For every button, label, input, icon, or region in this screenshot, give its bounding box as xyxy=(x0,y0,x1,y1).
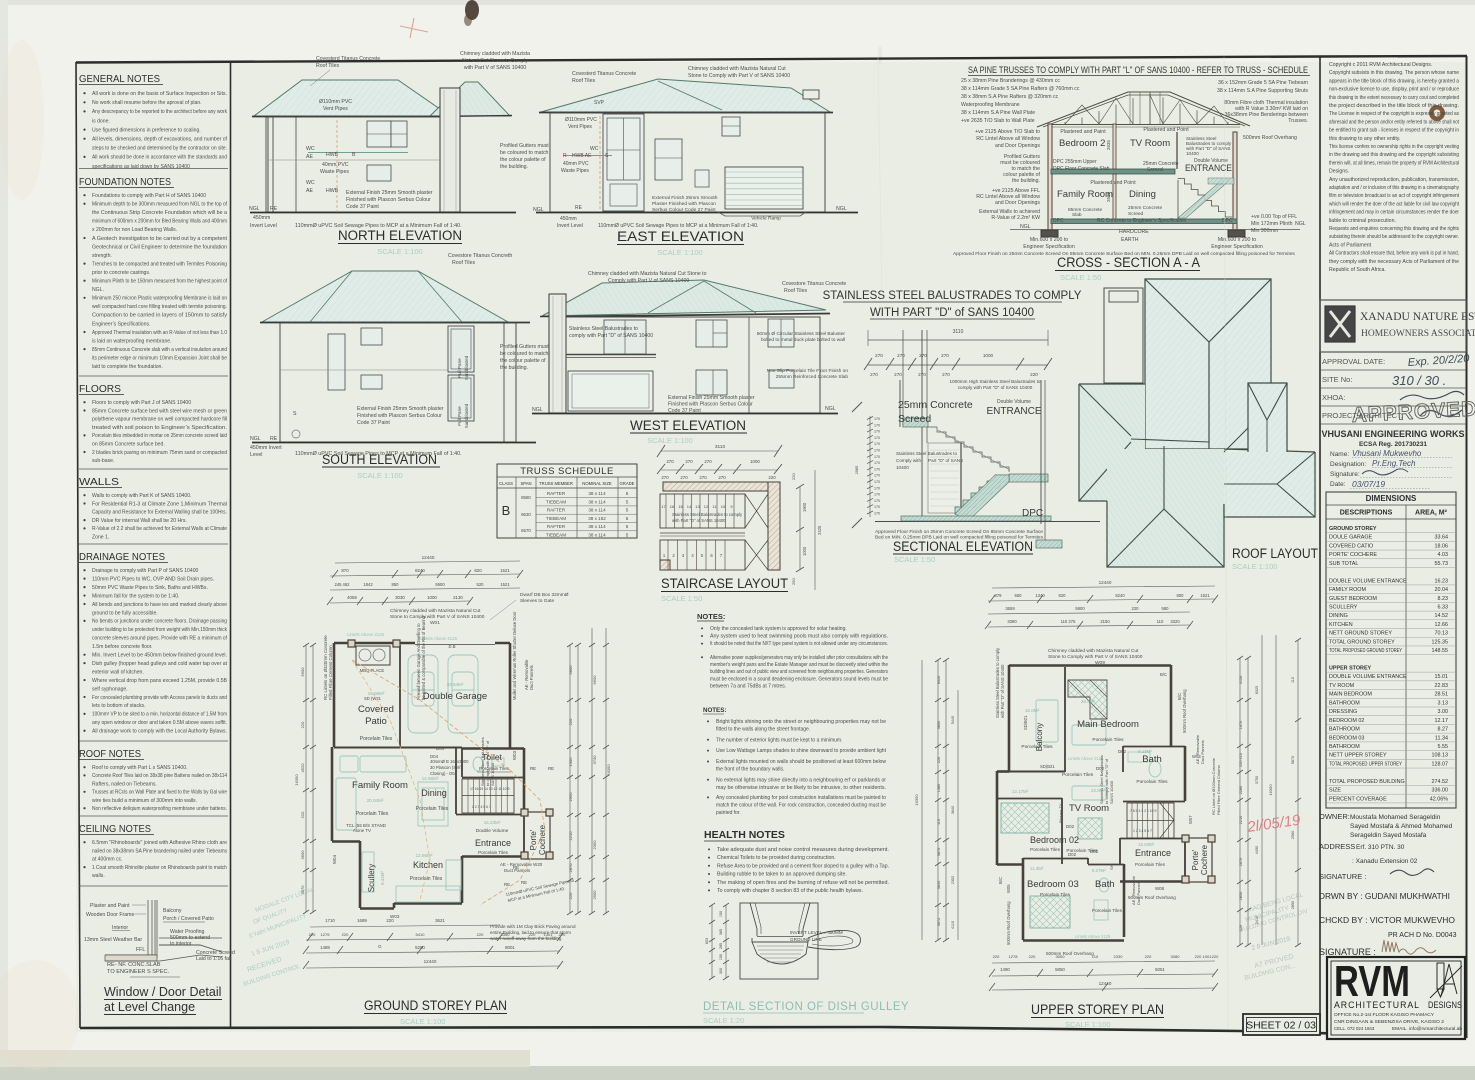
svg-text:110mm PVC Pipes to WC, OVP AND: 110mm PVC Pipes to WC, OVP AND Soil Drai… xyxy=(92,576,214,582)
svg-text:ARCHITECTURAL: ARCHITECTURAL xyxy=(1334,1000,1420,1010)
svg-text:Laid to 1:16 fall: Laid to 1:16 fall xyxy=(196,956,231,962)
svg-text:SOUTH ELEVATION: SOUTH ELEVATION xyxy=(322,452,437,467)
svg-text:RE: RE xyxy=(521,880,527,885)
svg-text:Interior: Interior xyxy=(112,925,128,931)
svg-text:KITCHEN: KITCHEN xyxy=(1329,622,1353,628)
svg-text:Family Room: Family Room xyxy=(352,780,408,791)
svg-text:its perimeter edge or minimum: its perimeter edge or minimum 10mm Expan… xyxy=(92,355,227,361)
svg-text:110 375: 110 375 xyxy=(1061,619,1076,624)
svg-text:Porcelain Tiles: Porcelain Tiles xyxy=(1040,892,1071,897)
svg-text:SITE No:: SITE No: xyxy=(1322,375,1352,384)
svg-text:SD/B21: SD/B21 xyxy=(1023,715,1028,730)
svg-text:GROUND STOREY PLAN: GROUND STOREY PLAN xyxy=(364,998,507,1013)
svg-text:170: 170 xyxy=(874,467,880,471)
svg-text:aforesaid and the person and/o: aforesaid and the person and/or entity r… xyxy=(1329,119,1459,125)
svg-text:1300: 1300 xyxy=(568,757,573,767)
svg-text:110: 110 xyxy=(937,819,941,825)
svg-text:Chimney cladded with Mazista N: Chimney cladded with Mazista Natural Cut xyxy=(688,66,786,72)
svg-text:SCALE 1:100: SCALE 1:100 xyxy=(647,436,692,445)
svg-text:NGL: NGL xyxy=(532,407,543,413)
svg-text:No bends or junctions under co: No bends or junctions under concrete flo… xyxy=(92,619,227,625)
svg-text:70.13: 70.13 xyxy=(1435,631,1449,637)
svg-text:MAIN BEDROOM: MAIN BEDROOM xyxy=(1329,692,1372,698)
svg-text:Comply with: Comply with xyxy=(896,458,921,463)
svg-text:7 6 5 4 3 2 1 10 9: 7 6 5 4 3 2 1 10 9 xyxy=(1130,809,1157,813)
svg-text:4.03: 4.03 xyxy=(1438,552,1449,558)
svg-text:25mm Concrete: 25mm Concrete xyxy=(1128,205,1162,211)
svg-text:SD (W21: SD (W21 xyxy=(364,696,382,701)
svg-text:Compaction to be carried in la: Compaction to be carried in layers of 15… xyxy=(92,313,227,319)
svg-text:8240: 8240 xyxy=(1115,593,1125,598)
svg-text:36 x 152mm Grade 5 SA Pine Tie: 36 x 152mm Grade 5 SA Pine Tiebeam xyxy=(1218,80,1308,86)
svg-text:WALLS: WALLS xyxy=(79,476,119,488)
svg-text:Bright lights shining onto the: Bright lights shining onto the street or… xyxy=(716,719,886,725)
svg-text:3110: 3110 xyxy=(715,444,726,450)
svg-text:wire ties build a minimum of 3: wire ties build a minimum of 300mm into … xyxy=(92,798,197,804)
svg-text:Provide with 1M Clay Brick Pav: Provide with 1M Clay Brick Paving around xyxy=(490,924,576,929)
svg-text:TO ENGINEER S SPEC.: TO ENGINEER S SPEC. xyxy=(107,969,170,975)
svg-text:SVP: SVP xyxy=(594,100,605,106)
svg-text:Porcelain tiles imbedded in m: Porcelain tiles imbedded in mortar on 25… xyxy=(92,433,227,439)
svg-text:30 Plascon (Self: 30 Plascon (Self xyxy=(430,765,461,770)
svg-text:DOUBLE VOLUME ENTRANCE: DOUBLE VOLUME ENTRANCE xyxy=(1329,578,1407,584)
svg-text:is done.: is done. xyxy=(92,118,110,124)
svg-text:Name:: Name: xyxy=(1330,451,1349,458)
svg-text:3659: 3659 xyxy=(1005,606,1015,611)
svg-text:CNR DINGAAN & SEBENZISA DRIVE,: CNR DINGAAN & SEBENZISA DRIVE, KAGISO 2 xyxy=(1334,1019,1445,1024)
svg-text:250: 250 xyxy=(791,578,796,585)
svg-text:Min.600 x 200 to: Min.600 x 200 to xyxy=(1030,237,1068,243)
svg-text:W03: W03 xyxy=(512,750,517,760)
svg-text:ADDRESS: ADDRESS xyxy=(1319,842,1355,851)
svg-text:ROOF NOTES: ROOF NOTES xyxy=(79,748,141,760)
svg-text:8001: 8001 xyxy=(505,945,515,950)
svg-text:Code 37 Paint: Code 37 Paint xyxy=(346,204,379,210)
svg-text:38 x 114: 38 x 114 xyxy=(588,533,606,538)
svg-text:at Level Change: at Level Change xyxy=(104,1000,195,1014)
svg-text:2635: 2635 xyxy=(1106,192,1111,202)
svg-text:The License in respect of the: The License in respect of the copyright … xyxy=(1329,111,1459,117)
svg-text:170: 170 xyxy=(874,474,880,478)
svg-text:SCALE 1:100: SCALE 1:100 xyxy=(657,248,702,257)
svg-text:220: 220 xyxy=(568,892,573,899)
svg-text:1521: 1521 xyxy=(500,568,510,573)
svg-text:comply with Part "D" of SANS 1: comply with Part "D" of SANS 10400 xyxy=(569,333,653,339)
svg-text:15.03M²: 15.03M² xyxy=(1138,842,1155,847)
svg-text:: Xanadu Extension 02: : Xanadu Extension 02 xyxy=(1352,858,1418,865)
svg-text:Porcelain Tiles: Porcelain Tiles xyxy=(1021,744,1053,750)
svg-text:PERCENT COVERAGE: PERCENT COVERAGE xyxy=(1329,796,1387,802)
svg-text:270: 270 xyxy=(685,459,693,464)
svg-text:PR ACH D No. D0043: PR ACH D No. D0043 xyxy=(1388,932,1457,939)
svg-text:OFFICE No.2-1st FLOOR KAGISO P: OFFICE No.2-1st FLOOR KAGISO PHAMACY xyxy=(1334,1012,1434,1017)
svg-text:520: 520 xyxy=(477,582,485,587)
svg-text:Roof Tiles: Roof Tiles xyxy=(316,63,339,69)
svg-text:12440: 12440 xyxy=(1099,981,1112,986)
svg-text:Capacity and Resistance for Ex: Capacity and Resistance for External Wal… xyxy=(92,510,227,516)
svg-text:40mm PVC: 40mm PVC xyxy=(563,161,589,167)
svg-text:500mm Roof Overhang: 500mm Roof Overhang xyxy=(1243,135,1297,141)
svg-text:3750: 3750 xyxy=(1255,776,1259,784)
svg-text:Non Slip Porcelain Tile Floor: Non Slip Porcelain Tile Floor Finish on xyxy=(767,368,849,374)
svg-text:Full Pane: Full Pane xyxy=(457,406,462,426)
svg-text:Republic of South Africa.: Republic of South Africa. xyxy=(1329,267,1386,273)
svg-text:462: 462 xyxy=(343,582,351,587)
svg-text:16350: 16350 xyxy=(914,794,919,806)
svg-text:DIMENSIONS: DIMENSIONS xyxy=(1366,494,1417,503)
svg-text:Dwarf DB Box 32mmØ: Dwarf DB Box 32mmØ xyxy=(520,592,569,598)
svg-text:3320: 3320 xyxy=(1170,619,1180,624)
svg-text:Double Volume: Double Volume xyxy=(476,828,509,834)
svg-text:Covestore Titanus Concreth: Covestore Titanus Concreth xyxy=(448,253,512,259)
svg-text:16350: 16350 xyxy=(294,774,299,786)
svg-text:Porcelain Tiles: Porcelain Tiles xyxy=(360,736,393,742)
svg-text:Wooden Door Frame: Wooden Door Frame xyxy=(86,912,134,918)
svg-text:Plastered and Point: Plastered and Point xyxy=(1143,127,1189,133)
svg-text:5410: 5410 xyxy=(416,932,426,937)
svg-text:therein will, at all times, re: therein will, at all times, remain the p… xyxy=(1329,160,1459,166)
svg-text:12: 12 xyxy=(704,504,709,509)
svg-text:W04: W04 xyxy=(332,854,337,864)
svg-text:walls.: walls. xyxy=(92,873,105,879)
svg-text:Finished with Plascon Serbus C: Finished with Plascon Serbus Colour xyxy=(668,402,753,408)
svg-text:1380: 1380 xyxy=(937,784,941,792)
svg-text:be coloured to match: be coloured to match xyxy=(500,351,549,357)
svg-text:Filled Fibre Cement Column: Filled Fibre Cement Column xyxy=(1216,765,1221,815)
svg-text:COVERED CATIO: COVERED CATIO xyxy=(1329,543,1373,549)
svg-text:Concrete Roof Tiles laid on 38: Concrete Roof Tiles laid on 38x38 pine B… xyxy=(92,773,227,779)
svg-text:9630: 9630 xyxy=(521,512,531,517)
svg-text:2420: 2420 xyxy=(817,525,822,535)
svg-text:Invert Level: Invert Level xyxy=(250,223,277,229)
svg-text:Walls to comply with Part K of: Walls to comply with Part K of SANS 1040… xyxy=(92,493,191,499)
svg-text:ENTRANCE: ENTRANCE xyxy=(986,406,1041,417)
svg-text:and Door Openings: and Door Openings xyxy=(995,200,1040,206)
svg-text:Approved Thermal insulation wi: Approved Thermal insulation with an R-Va… xyxy=(92,330,227,336)
svg-text:270: 270 xyxy=(699,475,707,480)
svg-text:NGL: NGL xyxy=(825,406,836,412)
svg-text:5870: 5870 xyxy=(937,848,941,856)
svg-text:220: 220 xyxy=(342,932,349,937)
svg-text:220: 220 xyxy=(1145,954,1152,959)
svg-text:270: 270 xyxy=(718,475,726,480)
svg-text:Waterproofing Membrane: Waterproofing Membrane xyxy=(961,102,1020,108)
svg-text:1489: 1489 xyxy=(320,945,330,950)
svg-text:appears in the title block of: appears in the title block of this drawi… xyxy=(1329,78,1459,84)
svg-text:Covesterd Titanus Concrete: Covesterd Titanus Concrete xyxy=(572,71,636,77)
svg-text:Plasma TV: Plasma TV xyxy=(1058,803,1063,823)
svg-text:3621: 3621 xyxy=(435,918,445,923)
svg-text:Requests and enquiries concern: Requests and enquiries concerning this d… xyxy=(1329,226,1459,232)
svg-text:33.64M²: 33.64M² xyxy=(447,682,464,687)
svg-text:16350: 16350 xyxy=(606,764,611,776)
svg-text:TV Room: TV Room xyxy=(1130,138,1170,149)
svg-text:4126: 4126 xyxy=(1239,676,1243,684)
svg-text:D04: D04 xyxy=(436,746,445,751)
svg-text:Mullet and Wireman Roller Shut: Mullet and Wireman Roller Shutter Deluxe… xyxy=(512,611,517,700)
svg-text:Chimney cladded with Mazista N: Chimney cladded with Mazista Natural Cut xyxy=(1048,648,1139,654)
svg-text:270: 270 xyxy=(661,475,669,480)
svg-text:minimum of 600mm x 200mm for B: minimum of 600mm x 200mm for Bled Bearin… xyxy=(92,219,227,225)
svg-text:38 x 114mm S.A Pine Supporting: 38 x 114mm S.A Pine Supporting Struts xyxy=(1217,88,1308,94)
svg-text:+ve 0.00 Top of FFL: +ve 0.00 Top of FFL xyxy=(1251,214,1297,220)
svg-text:1275: 1275 xyxy=(321,932,331,937)
svg-text:External lights mounted on wal: External lights mounted on walls should … xyxy=(716,759,886,765)
svg-text:220: 220 xyxy=(559,932,566,937)
svg-text:220: 220 xyxy=(309,932,316,937)
svg-text:RE: RE xyxy=(270,206,278,212)
svg-text:Profiled Gutters must: Profiled Gutters must xyxy=(500,143,549,149)
svg-text:Bedroom 2: Bedroom 2 xyxy=(1059,138,1105,149)
svg-text:1000mm High Stainless Steel Ba: 1000mm High Stainless Steel Balustrades … xyxy=(950,379,1041,384)
svg-text:the Continuous Strip Concrete: the Continuous Strip Concrete Foundation… xyxy=(92,210,227,216)
svg-text:310 / 30 .: 310 / 30 . xyxy=(1392,373,1446,388)
svg-text:Take adequate dust and noise c: Take adequate dust and noise control mea… xyxy=(717,847,889,853)
svg-text:VHUSANI ENGINEERING WORKS: VHUSANI ENGINEERING WORKS xyxy=(1321,429,1464,439)
svg-text:820: 820 xyxy=(1059,593,1067,598)
svg-text:879: 879 xyxy=(995,593,1003,598)
svg-text:108.13: 108.13 xyxy=(1432,753,1449,759)
svg-text:the colour palette of: the colour palette of xyxy=(500,157,546,163)
svg-text:38 x 114: 38 x 114 xyxy=(588,491,606,496)
svg-text:RE: RE xyxy=(530,766,536,771)
svg-text:Porcelain Tiles: Porcelain Tiles xyxy=(1136,779,1168,785)
svg-text:Minimum fall for the system to: Minimum fall for the system to be 1:40. xyxy=(92,593,179,599)
svg-text:8.27: 8.27 xyxy=(1438,727,1449,733)
svg-text:4520: 4520 xyxy=(300,763,305,773)
svg-text:220: 220 xyxy=(477,932,484,937)
svg-text:8.27M²: 8.27M² xyxy=(1092,868,1106,873)
svg-text:Ø110mm PVC: Ø110mm PVC xyxy=(319,99,352,105)
svg-text:DPC: DPC xyxy=(1022,508,1043,519)
svg-text:Screed: Screed xyxy=(898,413,931,425)
svg-text:Roof Tiles: Roof Tiles xyxy=(452,260,475,266)
svg-text:Pr.Eng.Tech: Pr.Eng.Tech xyxy=(1372,459,1416,468)
svg-text:13: 13 xyxy=(695,504,700,509)
svg-text:NGL: NGL xyxy=(1295,221,1306,227)
svg-text:the colour palette of: the colour palette of xyxy=(500,358,546,364)
svg-text:laid to complete the foundatio: laid to complete the foundation. xyxy=(92,364,163,370)
svg-text:33.64: 33.64 xyxy=(1435,535,1449,541)
svg-text:220: 220 xyxy=(386,918,394,923)
svg-text:12440: 12440 xyxy=(1099,580,1112,585)
svg-text:DPC: DPC xyxy=(1222,218,1233,224)
svg-text:NGL: NGL xyxy=(249,206,260,212)
svg-text:3390: 3390 xyxy=(1007,619,1017,624)
svg-text:+ve 2635 T/O Slab to Wall Plat: +ve 2635 T/O Slab to Wall Plate xyxy=(961,118,1035,124)
svg-text:6.33M²: 6.33M² xyxy=(380,871,385,885)
svg-text:Cochere: Cochere xyxy=(1200,844,1209,875)
svg-text:painted for.: painted for. xyxy=(716,810,741,816)
svg-text:500mm Roof Overhang: 500mm Roof Overhang xyxy=(1006,901,1011,945)
svg-text:Covered: Covered xyxy=(358,704,394,715)
svg-text:Porcelain Tiles: Porcelain Tiles xyxy=(1092,908,1123,913)
svg-text:16350: 16350 xyxy=(1268,784,1273,796)
svg-text:12.66: 12.66 xyxy=(1435,622,1449,628)
svg-text:SUB TOTAL: SUB TOTAL xyxy=(1329,561,1358,567)
svg-text:Drainage to comply with Part P: Drainage to comply with Part P of SANS 1… xyxy=(92,568,199,574)
svg-text:Porcelain Tiles: Porcelain Tiles xyxy=(356,811,389,817)
svg-text:38 x 114: 38 x 114 xyxy=(588,499,606,504)
svg-text:liable to criminal prosecution: liable to criminal prosecution. xyxy=(1329,218,1396,224)
svg-text:Bedroom 03: Bedroom 03 xyxy=(1027,879,1079,890)
svg-text:110: 110 xyxy=(1092,954,1099,959)
svg-text:Stainless Steel Balustrades to: Stainless Steel Balustrades to comply xyxy=(672,512,743,517)
svg-text:Stainless Steel Balustrades to: Stainless Steel Balustrades to xyxy=(896,451,957,456)
svg-text:Stone to Comply with Part V of: Stone to Comply with Part V of SANS 1040… xyxy=(1048,654,1143,660)
svg-text:Porch / Covered Patio: Porch / Covered Patio xyxy=(163,916,214,922)
svg-text:220: 220 xyxy=(1030,372,1038,377)
svg-text:150: 150 xyxy=(719,911,723,917)
svg-text:Any system used to heat swimmi: Any system used to heat swimming pools m… xyxy=(710,634,888,640)
svg-text:3080: 3080 xyxy=(1171,954,1181,959)
svg-text:220: 220 xyxy=(937,757,941,763)
svg-text:All bends and junctions to hav: All bends and junctions to have ies and … xyxy=(92,602,227,608)
svg-text:170: 170 xyxy=(874,499,880,503)
svg-text:Window / Door Detail: Window / Door Detail xyxy=(104,985,221,999)
svg-text:All drainage work to comply wi: All drainage work to comply with the Loc… xyxy=(92,729,227,735)
svg-text:Profiled Gutters must: Profiled Gutters must xyxy=(500,344,549,350)
svg-text:Stone to Comply with Part V of: Stone to Comply with Part V of SANS 1040… xyxy=(390,614,485,620)
svg-text:170: 170 xyxy=(874,480,880,484)
svg-text:2560: 2560 xyxy=(1291,831,1295,839)
svg-text:Designation:: Designation: xyxy=(1330,461,1366,468)
svg-text:R-Value of 2.2 shall be achiev: R-Value of 2.2 shall be achieved for Ext… xyxy=(92,526,227,532)
svg-text:270: 270 xyxy=(897,353,905,358)
svg-text:170: 170 xyxy=(874,423,880,427)
svg-text:with Part V of SANS 10400: with Part V of SANS 10400 xyxy=(464,65,526,71)
svg-text:Copyright subsists in this dra: Copyright subsists in this drawing. The … xyxy=(1329,70,1459,76)
svg-text:Porcelain Tiles: Porcelain Tiles xyxy=(478,850,509,855)
svg-text:220: 220 xyxy=(1132,606,1140,611)
svg-text:non-exclusive licence to use,: non-exclusive licence to use, display, p… xyxy=(1329,87,1459,93)
svg-text:Code 37 Paint: Code 37 Paint xyxy=(668,408,701,414)
svg-text:RE: RE xyxy=(548,766,554,771)
svg-text:2670: 2670 xyxy=(1239,858,1243,866)
svg-text:650: 650 xyxy=(1015,593,1023,598)
svg-text:DOULE GARAGE: DOULE GARAGE xyxy=(1329,535,1373,541)
svg-text:1.5m before concrete floor.: 1.5m before concrete floor. xyxy=(92,644,153,650)
svg-text:Minimum Plinth to be 150mm mea: Minimum Plinth to be 150mm measured from… xyxy=(92,279,228,285)
svg-text:170: 170 xyxy=(874,449,880,453)
svg-text:between 7a and 75dBs at 7 mtr: between 7a and 75dBs at 7 mtres. xyxy=(710,684,786,690)
svg-text:exterior wall of kitchen.: exterior wall of kitchen. xyxy=(92,669,144,675)
svg-text:Serbus Colour Code 27 Paint: Serbus Colour Code 27 Paint xyxy=(652,207,716,213)
svg-text:10400: 10400 xyxy=(1186,151,1199,156)
svg-text:2985: 2985 xyxy=(855,466,859,474)
svg-text:WC: WC xyxy=(306,146,315,152)
svg-text:A Geotech investigation to be: A Geotech investigation to be carried ou… xyxy=(92,236,228,242)
svg-text:Rafters, nailed on Tiebeams.: Rafters, nailed on Tiebeams. xyxy=(92,781,157,787)
svg-text:110: 110 xyxy=(1291,677,1295,683)
svg-text:Scullery: Scullery xyxy=(367,864,376,892)
svg-text:220: 220 xyxy=(1212,954,1219,959)
svg-text:Engineer Specification: Engineer Specification xyxy=(1211,244,1263,250)
svg-text:WC: WC xyxy=(590,146,599,152)
svg-text:Refuse Area to be provided and: Refuse Area to be provided and a cement … xyxy=(717,863,889,869)
svg-text:Designs.: Designs. xyxy=(1329,169,1349,175)
svg-text:5: 5 xyxy=(626,524,629,529)
svg-text:TRUSS SCHEDULE: TRUSS SCHEDULE xyxy=(520,466,614,477)
svg-text:28.51: 28.51 xyxy=(1435,692,1449,698)
svg-text:match the colour of the wall.: match the colour of the wall. For rock c… xyxy=(716,802,886,808)
svg-text:2635: 2635 xyxy=(1106,140,1111,150)
svg-text:EAST ELEVATION: EAST ELEVATION xyxy=(617,229,744,244)
svg-text:2280: 2280 xyxy=(1239,786,1243,794)
svg-text:under building to be protected: under building to be protected from weig… xyxy=(92,627,227,633)
svg-text:DRAINAGE NOTES: DRAINAGE NOTES xyxy=(79,551,165,563)
svg-text:2330: 2330 xyxy=(1114,954,1124,959)
svg-text:The making of open fires and t: The making of open fires and the burning… xyxy=(717,880,889,886)
svg-text:2950: 2950 xyxy=(568,792,573,802)
svg-text:Foundations to comply with Par: Foundations to comply with Part H of SAN… xyxy=(92,193,206,199)
svg-text:3600: 3600 xyxy=(300,850,305,860)
svg-text:TRUSS MEMBER: TRUSS MEMBER xyxy=(539,481,573,486)
svg-text:BATHROOM: BATHROOM xyxy=(1329,727,1360,733)
svg-text:1521: 1521 xyxy=(1200,593,1210,598)
svg-text:274.52: 274.52 xyxy=(1432,779,1449,785)
svg-text:820: 820 xyxy=(474,568,482,573)
svg-text:AREA, M²: AREA, M² xyxy=(1415,510,1448,517)
svg-text:bolted to metal duck plate bol: bolted to metal duck plate bolted to wal… xyxy=(761,337,845,343)
svg-text:Use figured dimensions in pref: Use figured dimensions in preference to … xyxy=(92,127,201,133)
svg-text:WC: WC xyxy=(306,180,315,186)
svg-text:UPPER STOREY PLAN: UPPER STOREY PLAN xyxy=(1031,1002,1164,1017)
svg-text:may be otherwise intrusive or: may be otherwise intrusive or be likely … xyxy=(716,785,886,791)
svg-text:17 16 15 14 13 12 11 10 9: 17 16 15 14 13 12 11 10 9 xyxy=(470,787,509,791)
svg-text:BEDROOM 02: BEDROOM 02 xyxy=(1329,718,1364,724)
svg-text:Non reflective deliqium waterp: Non reflective deliqium waterproofing me… xyxy=(92,806,227,812)
svg-text:INVERT LEVEL = 450MM: INVERT LEVEL = 450MM xyxy=(790,930,843,935)
svg-text:5.55: 5.55 xyxy=(1438,744,1449,750)
svg-text:Dining: Dining xyxy=(421,788,447,798)
svg-text:DRWN BY : GUDANI MUKHWATHI: DRWN BY : GUDANI MUKHWATHI xyxy=(1319,892,1450,901)
svg-text:220: 220 xyxy=(1029,954,1036,959)
svg-text:Slab: Slab xyxy=(1072,212,1082,218)
svg-text:All work should be done in acc: All work should be done in accordance wi… xyxy=(92,155,227,161)
svg-text:building lines and out of publ: building lines and out of public view an… xyxy=(710,669,888,675)
svg-text:this drawing to any other enti: this drawing to any other entity. xyxy=(1329,136,1400,142)
svg-text:HWB: HWB xyxy=(326,152,339,158)
svg-text:RAFTER: RAFTER xyxy=(547,524,566,529)
svg-text:2950: 2950 xyxy=(592,890,597,900)
svg-text:DINING: DINING xyxy=(1329,613,1348,619)
svg-text:Plaster and Paint: Plaster and Paint xyxy=(90,903,130,909)
svg-text:1 2 3 4 5 6 7: 1 2 3 4 5 6 7 xyxy=(1133,829,1152,833)
svg-text:This license confers no owners: This license confers no ownership rights… xyxy=(1329,144,1459,150)
svg-text:TIEBEAM: TIEBEAM xyxy=(546,516,566,521)
svg-text:External Finish 25mm Smooth pl: External Finish 25mm Smooth plaster xyxy=(346,190,433,196)
svg-text:38 x 152: 38 x 152 xyxy=(588,516,606,521)
svg-text:SCALE 1:50: SCALE 1:50 xyxy=(661,594,702,603)
svg-text:B/C: B/C xyxy=(998,877,1003,884)
svg-text:SH: SH xyxy=(1109,864,1114,870)
svg-text:W08: W08 xyxy=(1155,886,1165,891)
svg-text:DRESSING: DRESSING xyxy=(1329,709,1357,715)
svg-text:850: 850 xyxy=(392,582,400,587)
svg-text:Porcelain Tiles: Porcelain Tiles xyxy=(1030,847,1061,852)
svg-text:The number of exterior lights: The number of exterior lights must be ke… xyxy=(716,737,842,743)
svg-text:2 blades brick paving on minim: 2 blades brick paving on minimum 75mm sa… xyxy=(92,450,227,456)
svg-text:Approved Floor Finish on 25mm: Approved Floor Finish on 25mm Concrete S… xyxy=(875,529,1044,534)
svg-text:Entrance: Entrance xyxy=(1135,848,1171,858)
svg-text:270: 270 xyxy=(894,372,902,377)
svg-text:All Contractors shall ensure t: All Contractors shall ensure that, befor… xyxy=(1329,251,1459,257)
svg-text:10400: 10400 xyxy=(896,465,909,470)
svg-text:W07: W07 xyxy=(1188,815,1193,824)
svg-text:170: 170 xyxy=(874,493,880,497)
svg-text:member's weight pans and the E: member's weight pans and the Estate Mana… xyxy=(710,662,888,668)
